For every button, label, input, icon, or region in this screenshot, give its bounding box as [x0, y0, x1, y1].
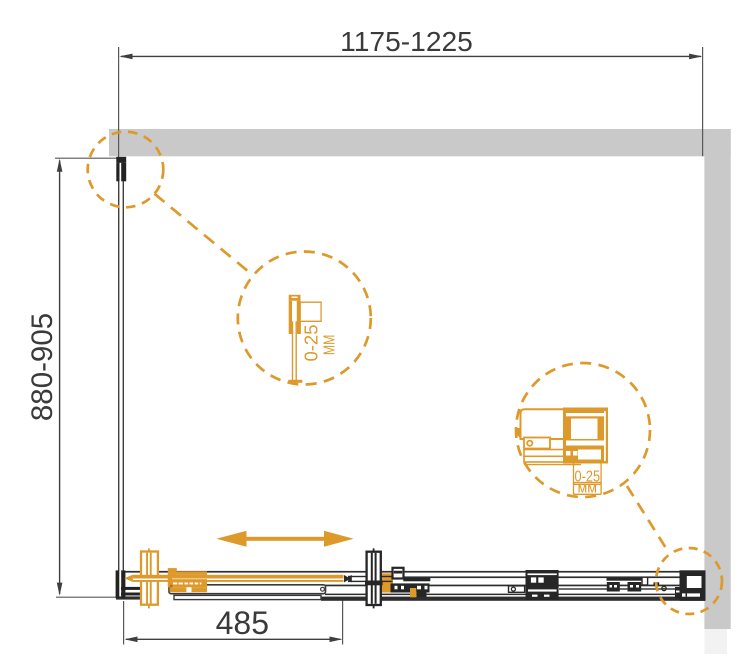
svg-text:ММ: ММ — [322, 335, 339, 356]
svg-text:1175-1225: 1175-1225 — [340, 25, 473, 57]
svg-text:0-25: 0-25 — [301, 324, 322, 361]
svg-text:мм: мм — [578, 481, 598, 496]
svg-text:485: 485 — [216, 605, 269, 641]
svg-text:880-905: 880-905 — [26, 313, 59, 421]
